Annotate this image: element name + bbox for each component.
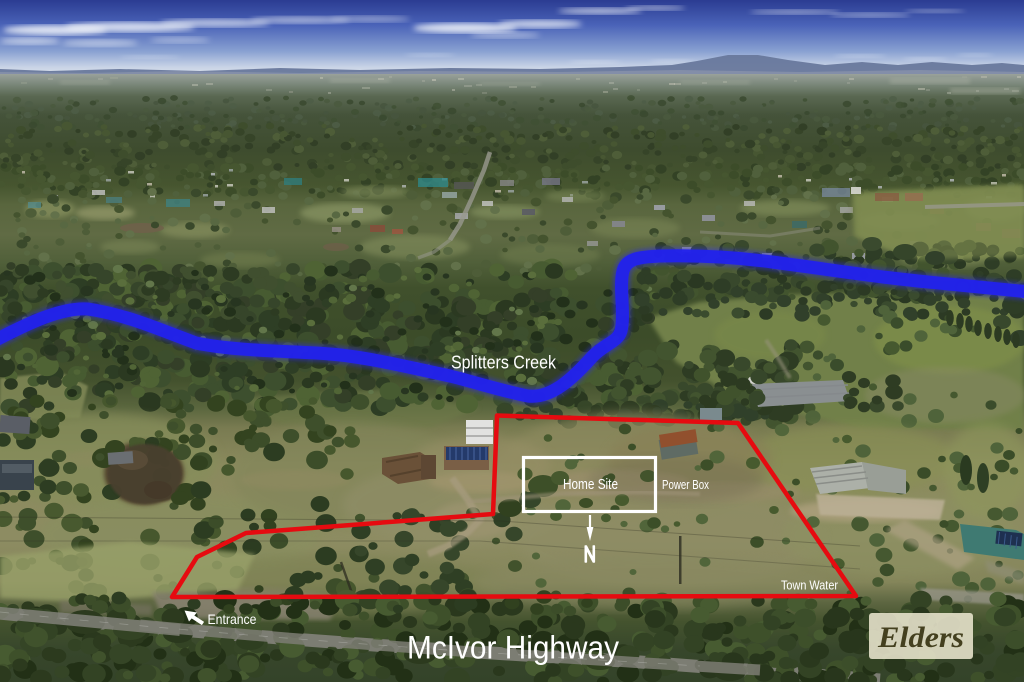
- svg-text:Entrance: Entrance: [208, 611, 257, 627]
- svg-text:Elders: Elders: [877, 621, 964, 654]
- svg-text:Splitters Creek: Splitters Creek: [451, 353, 557, 373]
- svg-text:Town Water: Town Water: [781, 578, 839, 593]
- svg-text:McIvor Highway: McIvor Highway: [407, 630, 620, 666]
- svg-text:Power Box: Power Box: [662, 477, 709, 492]
- svg-text:Home Site: Home Site: [563, 477, 618, 493]
